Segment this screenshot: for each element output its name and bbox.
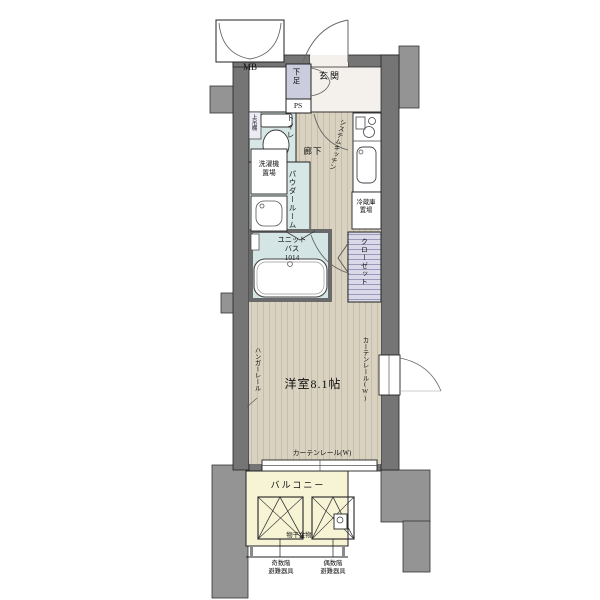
evac-even-label: 偶数階避難器具 bbox=[320, 560, 345, 576]
ps-label: PS bbox=[294, 101, 302, 110]
floor-plan: MB 玄関 下足 PS トイレ 上吊棚 廊下 システムキッチン 洗濯機置場 パウ… bbox=[0, 0, 600, 600]
washbasin-icon bbox=[251, 196, 287, 231]
hanger-rail-label: ハンガーレール bbox=[253, 347, 261, 391]
toilet-label: トイレ bbox=[286, 114, 295, 140]
kitchen-counter-icon bbox=[353, 113, 381, 192]
washer-space-label: 洗濯機置場 bbox=[259, 161, 279, 179]
hallway-label: 廊下 bbox=[303, 146, 322, 156]
curtain-rail-bottom-label: カーテンレール(W) bbox=[293, 450, 352, 458]
meter-box bbox=[216, 20, 284, 62]
room-label: 洋室8.1帖 bbox=[284, 377, 341, 391]
slop-sink-icon bbox=[334, 514, 347, 529]
shoe-box-label: 下足 bbox=[292, 68, 301, 85]
genkan-label: 玄関 bbox=[319, 71, 341, 82]
floorplan-drawing bbox=[0, 0, 600, 600]
fridge-space-label: 冷蔵庫置場 bbox=[357, 199, 376, 215]
curtain-rail-right-label: カーテンレール(W) bbox=[361, 337, 369, 402]
meter-box-label: MB bbox=[243, 62, 257, 73]
evac-odd-label: 奇数階避難器具 bbox=[268, 560, 293, 576]
side-window bbox=[379, 355, 441, 395]
powder-room-label: パウダールーム bbox=[288, 170, 297, 214]
balcony-label: バルコニー bbox=[271, 480, 326, 491]
laundry-hardware-label: 物干金物 bbox=[286, 532, 311, 540]
upper-shelf-label: 上吊棚 bbox=[250, 114, 257, 131]
closet-label: クローゼット bbox=[360, 238, 368, 286]
unit-bath-label: ユニットバス1014 bbox=[278, 236, 307, 263]
